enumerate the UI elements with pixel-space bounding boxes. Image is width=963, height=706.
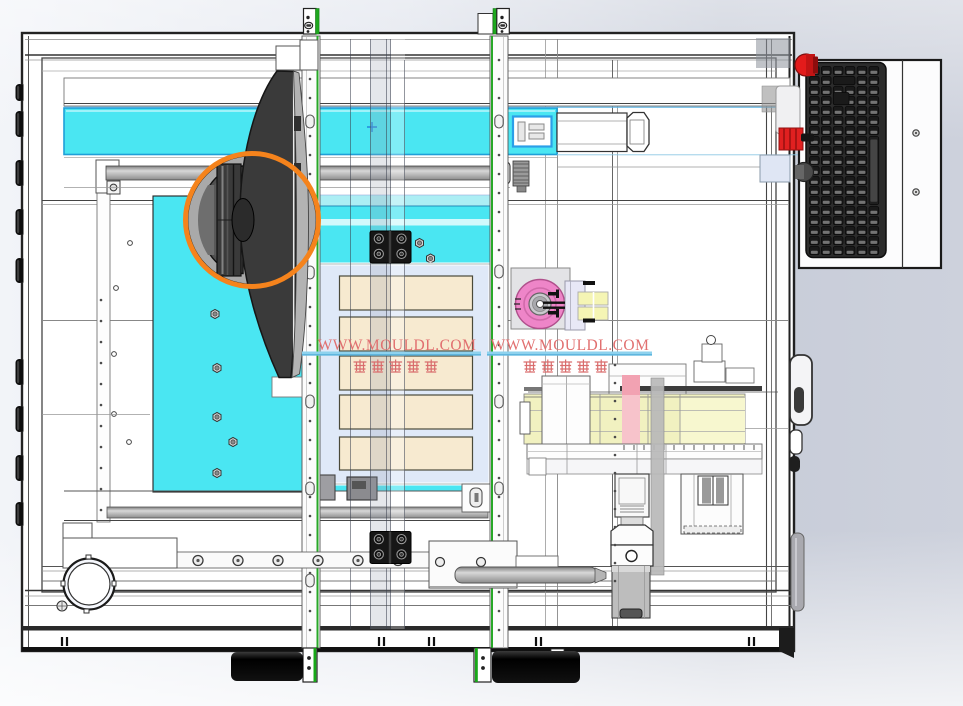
svg-text:WWW.MOULDL.COM: WWW.MOULDL.COM bbox=[318, 337, 477, 354]
svg-text:WWW.MOULDL.COM: WWW.MOULDL.COM bbox=[491, 337, 650, 354]
